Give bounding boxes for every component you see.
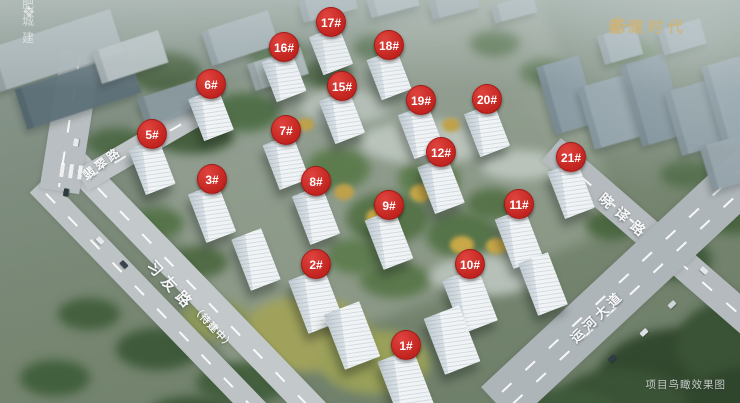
building-badge-21: 21#: [556, 142, 586, 172]
building-badge-5: 5#: [137, 119, 167, 149]
tree-icon: [334, 184, 354, 200]
aerial-site-rendering: 翡翠路习友路（待建中）晓译路运河大道 1#2#3#5#6#7#8#9#10#11…: [0, 0, 740, 403]
greenery: [360, 262, 430, 298]
developer-name: 合肥城建: [22, 0, 36, 46]
building-badge-18: 18#: [374, 30, 404, 60]
building-badge-16: 16#: [269, 32, 299, 62]
greenery: [58, 298, 120, 330]
building-badge-2: 2#: [301, 249, 331, 279]
building-badge-17: 17#: [316, 7, 346, 37]
building-badge-15: 15#: [327, 71, 357, 101]
building-badge-12: 12#: [426, 137, 456, 167]
project-name: 星耀时代: [608, 16, 688, 37]
building-badge-20: 20#: [472, 84, 502, 114]
building-badge-7: 7#: [271, 115, 301, 145]
building-badge-8: 8#: [301, 166, 331, 196]
building-badge-9: 9#: [374, 190, 404, 220]
greenery: [20, 360, 90, 396]
building-badge-19: 19#: [406, 85, 436, 115]
building-badge-11: 11#: [504, 189, 534, 219]
greenery: [470, 30, 520, 56]
building-badge-1: 1#: [391, 330, 421, 360]
rendering-caption: 项目鸟瞰效果图: [646, 377, 727, 392]
tree-icon: [442, 118, 460, 132]
residential-tower: [518, 252, 568, 316]
building-badge-10: 10#: [455, 249, 485, 279]
car: [667, 300, 676, 309]
building-badge-6: 6#: [196, 69, 226, 99]
city-building: [366, 0, 419, 18]
car: [63, 188, 69, 197]
building-badge-3: 3#: [197, 164, 227, 194]
